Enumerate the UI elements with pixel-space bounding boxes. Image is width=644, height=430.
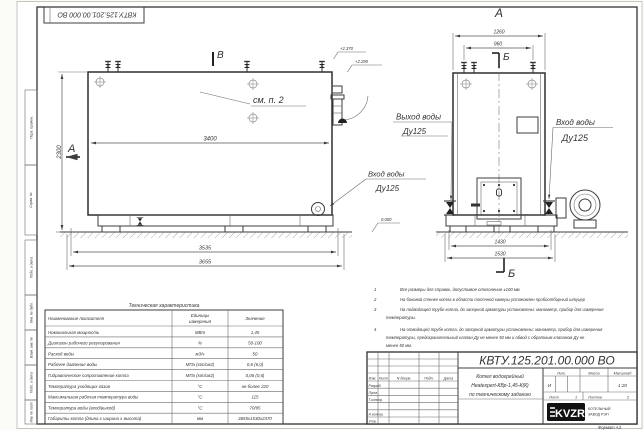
margin-label: Инв. № дубл. xyxy=(30,302,34,323)
note-num: 1 xyxy=(374,287,376,292)
cell-unit: мм xyxy=(197,416,203,421)
dim-960: 960 xyxy=(494,42,503,48)
company-line: ЗАВОД РЭП xyxy=(588,413,609,417)
note-line: температуры. xyxy=(386,315,416,320)
elevation-mark: +2.290 xyxy=(355,59,369,64)
kvzr-logo: KVZR xyxy=(547,403,585,421)
cell-name: Габариты котла (длина х ширина х высота) xyxy=(48,416,142,421)
col-header: Значение xyxy=(245,316,265,321)
tb-sheet-value: 1 xyxy=(575,395,577,399)
cell-value: 50-100 xyxy=(248,341,262,346)
cell-value: 50 xyxy=(253,351,258,356)
cell-value: не более 220 xyxy=(242,384,269,389)
tb-lit-header: Лит. xyxy=(556,372,566,376)
cell-name: Гидравлическое сопротивление котла xyxy=(48,373,129,378)
tb-col: Изм. xyxy=(369,377,377,381)
col-header: измерения xyxy=(189,319,212,324)
note-line: На отводящей трубе котла, до запорной ар… xyxy=(400,327,603,332)
tb-row: Пров. xyxy=(369,391,378,395)
zero-level-label: 0.000 xyxy=(381,217,392,222)
cell-value: 3655х1530х2370 xyxy=(238,416,272,421)
cell-value: 0,06 (0,6) xyxy=(246,373,265,378)
note-line: менее 50 мм. xyxy=(386,343,412,348)
elevation-mark: +2.370 xyxy=(340,46,354,51)
tb-col: Подп. xyxy=(424,377,434,381)
format-note: Формат А3 xyxy=(598,425,622,430)
dim-1260: 1260 xyxy=(493,30,504,36)
cell-name: Рабочее давление воды xyxy=(48,362,98,367)
tb-scale-value: 1:20 xyxy=(618,383,627,388)
margin-label: Подп. и дата xyxy=(30,372,34,393)
view-title-a: А xyxy=(494,6,503,20)
cell-name: Номинальная мощность xyxy=(48,330,100,335)
note-line: температуры, предохранительный клапан Ду… xyxy=(386,335,585,340)
inlet-water-dn: Ду125 xyxy=(561,133,589,143)
outlet-water-label: Выход воды xyxy=(396,113,441,122)
kvzr-logo-text: KVZR xyxy=(555,408,585,420)
section-marker-a: А xyxy=(67,143,75,155)
cell-value: 1,45 xyxy=(251,330,260,335)
dim-1530: 1530 xyxy=(494,252,505,258)
col-header: Единицы xyxy=(191,313,210,318)
tb-sheet-label: Лист xyxy=(548,395,559,399)
tb-row: Н.контр. xyxy=(369,413,384,417)
doc-title-line: по техническому заданию xyxy=(469,392,531,398)
cell-unit: м3/ч xyxy=(196,351,206,356)
drawing-number: КВТУ.125.201.00.000 ВО xyxy=(479,354,615,368)
tb-row: Утв. xyxy=(369,420,377,424)
cell-unit: МВт xyxy=(195,330,206,335)
dim-3535: 3535 xyxy=(199,246,212,252)
doc-title-line: Heatexpert-КВр-1,45-К(К) xyxy=(471,383,529,389)
dim-1430: 1430 xyxy=(494,240,505,246)
tech-table-title: Техническая характеристика xyxy=(129,303,200,309)
inlet-water-label: Вход воды xyxy=(556,118,595,127)
dim-3655: 3655 xyxy=(199,260,212,266)
title-block: Изм. Лист N докум. Подп. Дата Разраб. Пр… xyxy=(367,352,637,424)
margin-label: Перв. примен. xyxy=(30,116,34,139)
inlet-water-dn: Ду125 xyxy=(375,184,400,193)
tb-col: Дата xyxy=(443,377,453,381)
margin-label: Инв. № подл. xyxy=(30,401,34,422)
cell-value: 115 xyxy=(252,395,260,400)
tb-scale-header: Масштаб xyxy=(614,372,633,376)
stamp-number-inverted: КВТУ.125.201.00.000 ВО xyxy=(57,11,137,18)
cell-unit: % xyxy=(198,341,202,346)
doc-title-line: Котел водогрейный xyxy=(476,373,524,380)
outlet-water-dn: Ду125 xyxy=(402,127,427,136)
section-marker-b-top: Б xyxy=(503,52,510,63)
tb-col: Лист xyxy=(378,377,388,381)
margin-label: Справ. № xyxy=(29,192,33,208)
note-line: На подводящей трубе котла, до запорной а… xyxy=(400,307,604,312)
note-line: На боковой стенке котла в области топочн… xyxy=(400,297,586,302)
cell-unit: °С xyxy=(198,384,204,389)
drawing-sheet: КВТУ.125.201.00.000 ВО Перв. примен. Спр… xyxy=(0,0,644,430)
dim-2300: 2300 xyxy=(57,145,63,160)
cell-name: Диапазон рабочего регулирования xyxy=(47,341,120,346)
tb-col: N докум. xyxy=(397,377,412,381)
cell-name: Температура воды (вход/выход) xyxy=(48,405,116,410)
section-marker-v: В xyxy=(217,50,224,61)
cell-unit: МПа (кгс/см2) xyxy=(186,362,215,367)
tb-sheets-label: Листов xyxy=(587,395,602,399)
cell-value: 70/95 xyxy=(250,405,262,410)
section-marker-b-bottom: Б xyxy=(508,268,515,280)
see-note-label: см. п. 2 xyxy=(253,95,284,105)
inlet-water-label: Вход воды xyxy=(368,170,405,179)
cell-unit: МПа (кгс/см2) xyxy=(186,373,215,378)
note-line: Все размеры для справок, допустимое откл… xyxy=(400,287,521,292)
company-line: КОТЕЛЬНЫЙ xyxy=(588,407,611,411)
cell-unit: °С xyxy=(198,405,204,410)
cell-name: Расход воды xyxy=(48,351,75,356)
tb-row: Разраб. xyxy=(369,384,382,388)
tb-mass-header: Масса xyxy=(588,372,599,376)
cell-name: Максимальная рабочая температура воды xyxy=(48,395,139,400)
margin-label: Подп. и дата xyxy=(30,257,34,278)
cell-name: Температура уходящих газов xyxy=(48,384,111,389)
col-header: Наименование показателя xyxy=(48,316,105,321)
dim-3400: 3400 xyxy=(203,137,217,143)
margin-label: Взам. инв. № xyxy=(30,337,34,358)
tb-row: Т.контр. xyxy=(369,398,384,402)
cell-unit: °С xyxy=(198,395,204,400)
drawing-page: КВТУ.125.201.00.000 ВО Перв. примен. Спр… xyxy=(0,0,644,430)
cell-value: 0,6 (6,0) xyxy=(247,362,264,367)
